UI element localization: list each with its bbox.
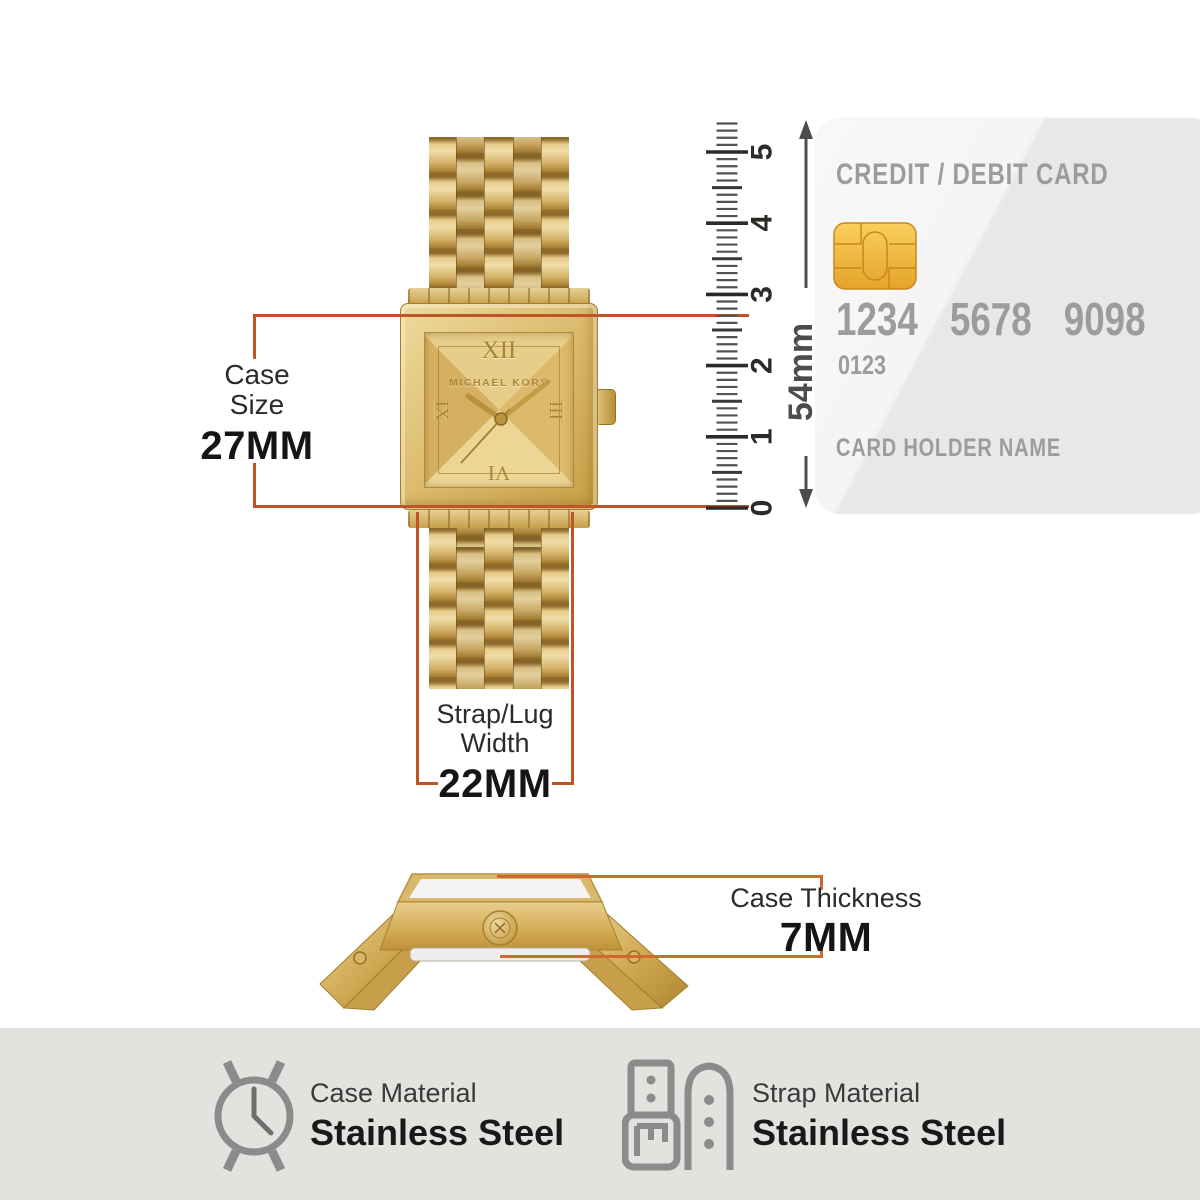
case-size-value: 27MM bbox=[193, 424, 321, 469]
watch-hands bbox=[425, 333, 575, 489]
card-chip-icon bbox=[833, 222, 917, 290]
watch-dial: XII IX III VI MICHAEL KORS bbox=[424, 332, 574, 488]
watch-endlink-bottom bbox=[408, 510, 590, 528]
ruler-number: 5 bbox=[746, 144, 773, 161]
side-crystal bbox=[409, 879, 591, 898]
card-number-group: 9098 bbox=[1064, 292, 1146, 346]
watch-bracelet-top bbox=[429, 137, 569, 289]
case-thickness-value: 7MM bbox=[700, 914, 952, 961]
watch-crown bbox=[595, 389, 616, 425]
watch-case-icon bbox=[208, 1058, 300, 1174]
card-sub-number: 0123 bbox=[838, 350, 886, 381]
ruler-number: 1 bbox=[746, 428, 773, 445]
credit-card: CREDIT / DEBIT CARD 1234 5678 9098 0123 … bbox=[816, 118, 1200, 514]
watch-side-view bbox=[290, 862, 710, 1012]
card-number: 1234 5678 9098 bbox=[836, 292, 1146, 346]
case-size-top-line bbox=[253, 314, 749, 317]
strap-width-right-line bbox=[571, 512, 574, 785]
case-size-left-tick-bottom bbox=[253, 463, 256, 508]
thickness-top-line bbox=[497, 875, 823, 878]
watch-bracelet-bottom bbox=[429, 528, 569, 689]
case-material-spec: Case Material Stainless Steel bbox=[310, 1078, 564, 1154]
strap-material-label: Strap Material bbox=[752, 1078, 1006, 1109]
ruler: 012345 bbox=[688, 98, 772, 528]
ruler-number: 0 bbox=[746, 500, 773, 517]
ruler-number: 3 bbox=[746, 286, 773, 303]
strap-width-label: Strap/Lug Width 22MM bbox=[420, 700, 570, 807]
case-material-value: Stainless Steel bbox=[310, 1112, 564, 1154]
materials-strip: Case Material Stainless Steel Strap Mate… bbox=[0, 1028, 1200, 1200]
card-holder-label: CARD HOLDER NAME bbox=[836, 434, 1061, 463]
strap-width-left-line bbox=[416, 512, 419, 785]
case-size-label: Case Size 27MM bbox=[193, 360, 321, 469]
side-link-pin bbox=[354, 952, 366, 964]
card-number-group: 5678 bbox=[950, 292, 1032, 346]
watch-strap-icon bbox=[622, 1058, 734, 1174]
ruler-number: 2 bbox=[746, 357, 773, 374]
ruler-number: 4 bbox=[746, 215, 773, 232]
watch-dimensions-infographic: XII IX III VI MICHAEL KORS Case Size 27M… bbox=[0, 0, 1200, 1200]
card-title: CREDIT / DEBIT CARD bbox=[836, 158, 1109, 192]
case-size-bottom-line bbox=[253, 505, 749, 508]
strap-material-value: Stainless Steel bbox=[752, 1112, 1006, 1154]
card-height-label: 54mm bbox=[782, 323, 820, 421]
strap-width-value: 22MM bbox=[420, 762, 570, 807]
case-size-left-tick-top bbox=[253, 314, 256, 359]
strap-material-spec: Strap Material Stainless Steel bbox=[752, 1078, 1006, 1154]
case-thickness-label: Case Thickness 7MM bbox=[700, 883, 952, 961]
card-number-group: 1234 bbox=[836, 292, 918, 346]
case-material-label: Case Material bbox=[310, 1078, 564, 1109]
